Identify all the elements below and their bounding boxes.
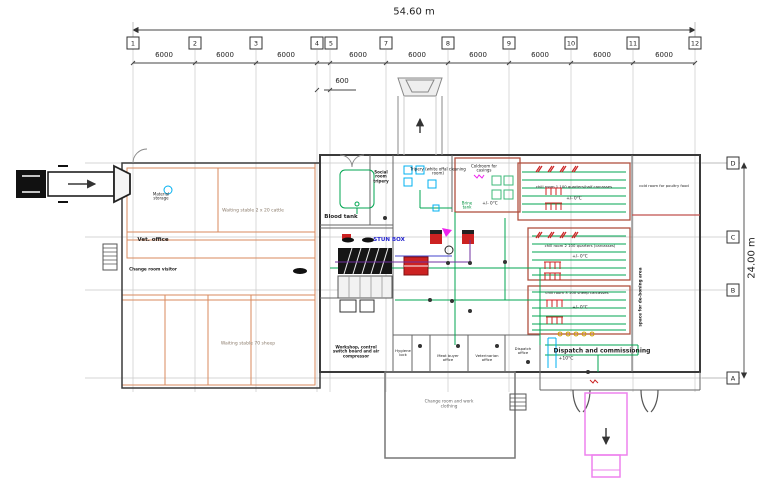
- room-label-chill-room-3: chill room 3 100 sheep carcasses: [545, 291, 608, 295]
- bay-dimension: 6000: [216, 52, 234, 60]
- grid-column-bubble: 11: [627, 37, 640, 50]
- grid-column-bubble: 10: [565, 37, 578, 50]
- room-label-stun-box: STUN BOX: [373, 237, 405, 243]
- bay-dimension: 6000: [277, 52, 295, 60]
- grid-row-bubble: D: [727, 157, 740, 170]
- room-label-dispatch-office: Dispatch office: [512, 347, 534, 356]
- exterior-stairs: [103, 244, 117, 270]
- grid-column-bubble: 8: [442, 37, 455, 50]
- room-label-social-room: Social room tripery: [371, 170, 391, 183]
- room-label-chill-room-1: chill room 1 100 quarters/half carcasses: [536, 185, 612, 189]
- bay-dimension: 6000: [655, 52, 673, 60]
- grid-column-bubble: 9: [503, 37, 516, 50]
- dispatch-docks: [510, 390, 658, 477]
- room-label-change-room-work: Change room and work clothing: [419, 399, 479, 408]
- overall-height-dimension: 24.00 m: [747, 237, 758, 279]
- plan-linework: [0, 0, 768, 495]
- room-label-deboning-area: space for de-boning area: [639, 267, 644, 326]
- room-label-vet-office: Vet. office: [137, 237, 168, 243]
- room-label-dispatch: Dispatch and commissioning: [554, 349, 651, 356]
- room-label-meat-buyer-office: Meat buyer office: [436, 354, 460, 363]
- room-label-waiting-stable-cattle: Waiting stable 2 x 20 cattle: [222, 210, 284, 215]
- grid-column-bubble: 7: [380, 37, 393, 50]
- grid-row-bubble: C: [727, 231, 740, 244]
- room-label-workshop: Workshop, control switch board and air c…: [332, 345, 380, 358]
- grid-column-bubble: 12: [689, 37, 702, 50]
- grid-column-bubble: 1: [127, 37, 140, 50]
- room-label-waiting-stable-sheep: Waiting stable 70 sheep: [221, 343, 275, 348]
- carcass-hooks: [536, 166, 594, 336]
- room-label-hygiene-lock: Hygiene lock: [394, 349, 412, 358]
- bay-dimension: 6000: [155, 52, 173, 60]
- grid-column-bubble: 3: [250, 37, 263, 50]
- bay-dimension: 6000: [469, 52, 487, 60]
- building-walls: [122, 155, 700, 458]
- room-label-change-room-visitor: Change room visitor: [129, 268, 177, 273]
- small-bay-dimension: 600: [335, 78, 348, 86]
- top-dock: [398, 78, 442, 155]
- bay-dimension: 6000: [593, 52, 611, 60]
- floor-plan-canvas: 54.60 m 24.00 m 600 6000 6000 6000 6000 …: [0, 0, 768, 495]
- bay-dimension: 6000: [349, 52, 367, 60]
- room-label-coldroom-casings: Coldroom for casings: [468, 165, 500, 174]
- grid-column-bubble: 4: [311, 37, 324, 50]
- temp-label-chill-2: +/- 0°C: [572, 255, 587, 260]
- room-label-tripery: Tripery (white offal cleaning room): [406, 168, 470, 177]
- room-label-blood-tank: Blood tank: [324, 214, 357, 220]
- bay-dimension: 6000: [531, 52, 549, 60]
- room-label-brine-tank: Brine tank: [458, 202, 476, 211]
- grid-row-bubble: A: [727, 372, 740, 385]
- room-label-veterinarian-office: Veterinarian office: [474, 354, 500, 363]
- grid-row-bubble: B: [727, 284, 740, 297]
- room-label-material-storage: Material storage: [148, 193, 174, 202]
- temp-label-dispatch: +10°C: [559, 358, 574, 363]
- overall-width-dimension: 54.60 m: [393, 7, 435, 18]
- grid-column-bubble: 5: [325, 37, 338, 50]
- temp-label-brine: +/- 0°C: [482, 202, 497, 207]
- grid-column-bubble: 2: [189, 37, 202, 50]
- door-swings: [133, 149, 364, 167]
- dimension-lines: [131, 22, 744, 378]
- room-label-chill-room-2: chill room 2 100 quarters (carcasses): [545, 244, 616, 248]
- bay-dimension: 6000: [408, 52, 426, 60]
- temp-label-chill-1: +/- 0°C: [566, 197, 581, 202]
- room-label-poultry-coldroom: cold room for poultry food: [639, 184, 689, 188]
- temp-label-chill-3: +/- 0°C: [572, 306, 587, 311]
- inbound-truck: [16, 166, 130, 202]
